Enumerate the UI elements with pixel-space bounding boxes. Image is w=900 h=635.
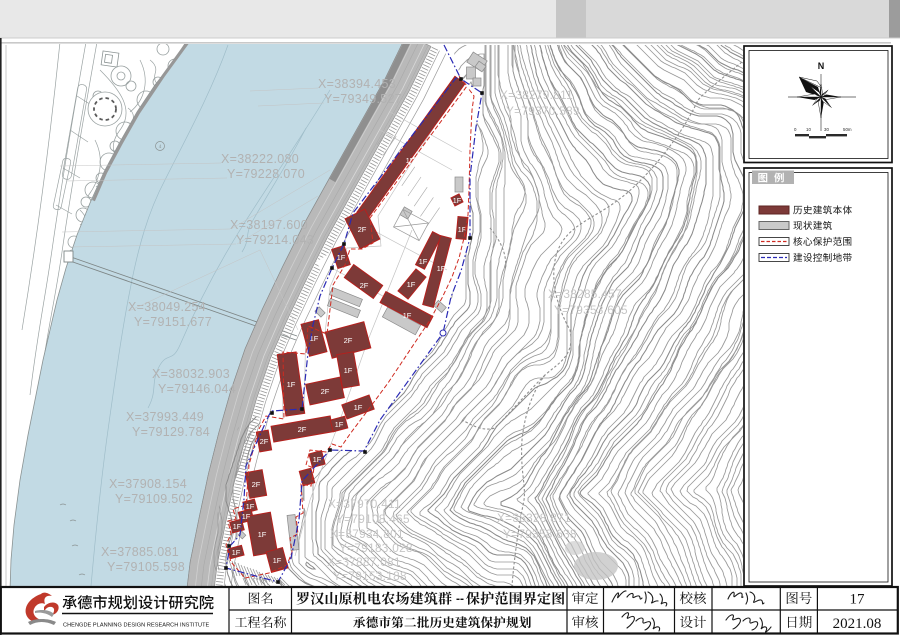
svg-text:X=38032.903: X=38032.903 xyxy=(152,367,230,381)
svg-text:--: -- xyxy=(456,592,464,606)
svg-text:1F: 1F xyxy=(403,311,412,320)
svg-text:1F: 1F xyxy=(258,530,267,539)
svg-text:Y=79370.589: Y=79370.589 xyxy=(506,104,580,118)
svg-text:Y=79109.502: Y=79109.502 xyxy=(115,492,193,506)
svg-text:Y=79129.784: Y=79129.784 xyxy=(132,425,210,439)
svg-text:X=38222.080: X=38222.080 xyxy=(221,152,299,166)
svg-text:2F: 2F xyxy=(252,480,261,489)
svg-text:Y=79228.070: Y=79228.070 xyxy=(227,167,305,181)
svg-text:X=38279.811: X=38279.811 xyxy=(500,88,573,102)
svg-text:Y=79108.465: Y=79108.465 xyxy=(336,512,410,526)
svg-text:Y=79349.527: Y=79349.527 xyxy=(324,92,402,106)
svg-text:50m: 50m xyxy=(843,127,852,132)
svg-text:2F: 2F xyxy=(358,225,367,234)
svg-text:1F: 1F xyxy=(313,455,322,464)
svg-text:Y=79151.677: Y=79151.677 xyxy=(134,315,212,329)
svg-text:X=37908.154: X=37908.154 xyxy=(109,477,187,491)
svg-text:1F: 1F xyxy=(406,156,415,165)
svg-text:1F: 1F xyxy=(419,257,428,266)
svg-text:1F: 1F xyxy=(335,420,344,429)
svg-text:1F: 1F xyxy=(437,264,446,273)
svg-text:1F: 1F xyxy=(246,502,255,511)
svg-text:1F: 1F xyxy=(232,548,241,557)
svg-text:Y=79146.044: Y=79146.044 xyxy=(158,382,236,396)
svg-text:X=37885.081: X=37885.081 xyxy=(101,545,179,559)
svg-text:N: N xyxy=(818,61,825,71)
svg-text:Y=79214.043: Y=79214.043 xyxy=(236,233,314,247)
svg-text:2F: 2F xyxy=(344,336,353,345)
svg-text:X=38049.254: X=38049.254 xyxy=(128,300,206,314)
svg-text:X=37887.081: X=37887.081 xyxy=(327,555,401,569)
svg-text:1F: 1F xyxy=(407,280,416,289)
svg-text:X=37970.411: X=37970.411 xyxy=(328,497,401,511)
svg-text:2F: 2F xyxy=(360,281,369,290)
svg-text:X=38285.457: X=38285.457 xyxy=(548,287,622,301)
svg-text:2F: 2F xyxy=(321,387,330,396)
svg-text:1F: 1F xyxy=(344,366,353,375)
svg-text:Y=79153.188: Y=79153.188 xyxy=(333,569,407,583)
svg-text:X=37993.449: X=37993.449 xyxy=(126,410,204,424)
svg-text:2F: 2F xyxy=(298,425,307,434)
svg-text:Y=79353.605: Y=79353.605 xyxy=(554,303,628,317)
svg-text:10: 10 xyxy=(806,127,811,132)
svg-text:Y=79183.028: Y=79183.028 xyxy=(339,541,413,555)
svg-text:2021.08: 2021.08 xyxy=(833,616,882,632)
svg-text:30: 30 xyxy=(824,127,829,132)
svg-text:1F: 1F xyxy=(354,403,363,412)
svg-text:X=38394.453: X=38394.453 xyxy=(318,77,396,91)
svg-text:1F: 1F xyxy=(273,556,282,565)
svg-text:1F: 1F xyxy=(453,196,462,205)
svg-text:1F: 1F xyxy=(287,380,296,389)
svg-text:Y=79105.598: Y=79105.598 xyxy=(107,560,185,574)
svg-text:17: 17 xyxy=(850,592,866,608)
svg-text:X=38328.871: X=38328.871 xyxy=(497,511,571,525)
svg-text:CHENGDE PLANNING DESIGN RESEAR: CHENGDE PLANNING DESIGN RESEARCH INSTITU… xyxy=(63,623,210,629)
svg-text:X=37934.801: X=37934.801 xyxy=(330,527,404,541)
svg-text:Y=79358.638: Y=79358.638 xyxy=(503,527,577,541)
svg-text:2F: 2F xyxy=(260,437,269,446)
